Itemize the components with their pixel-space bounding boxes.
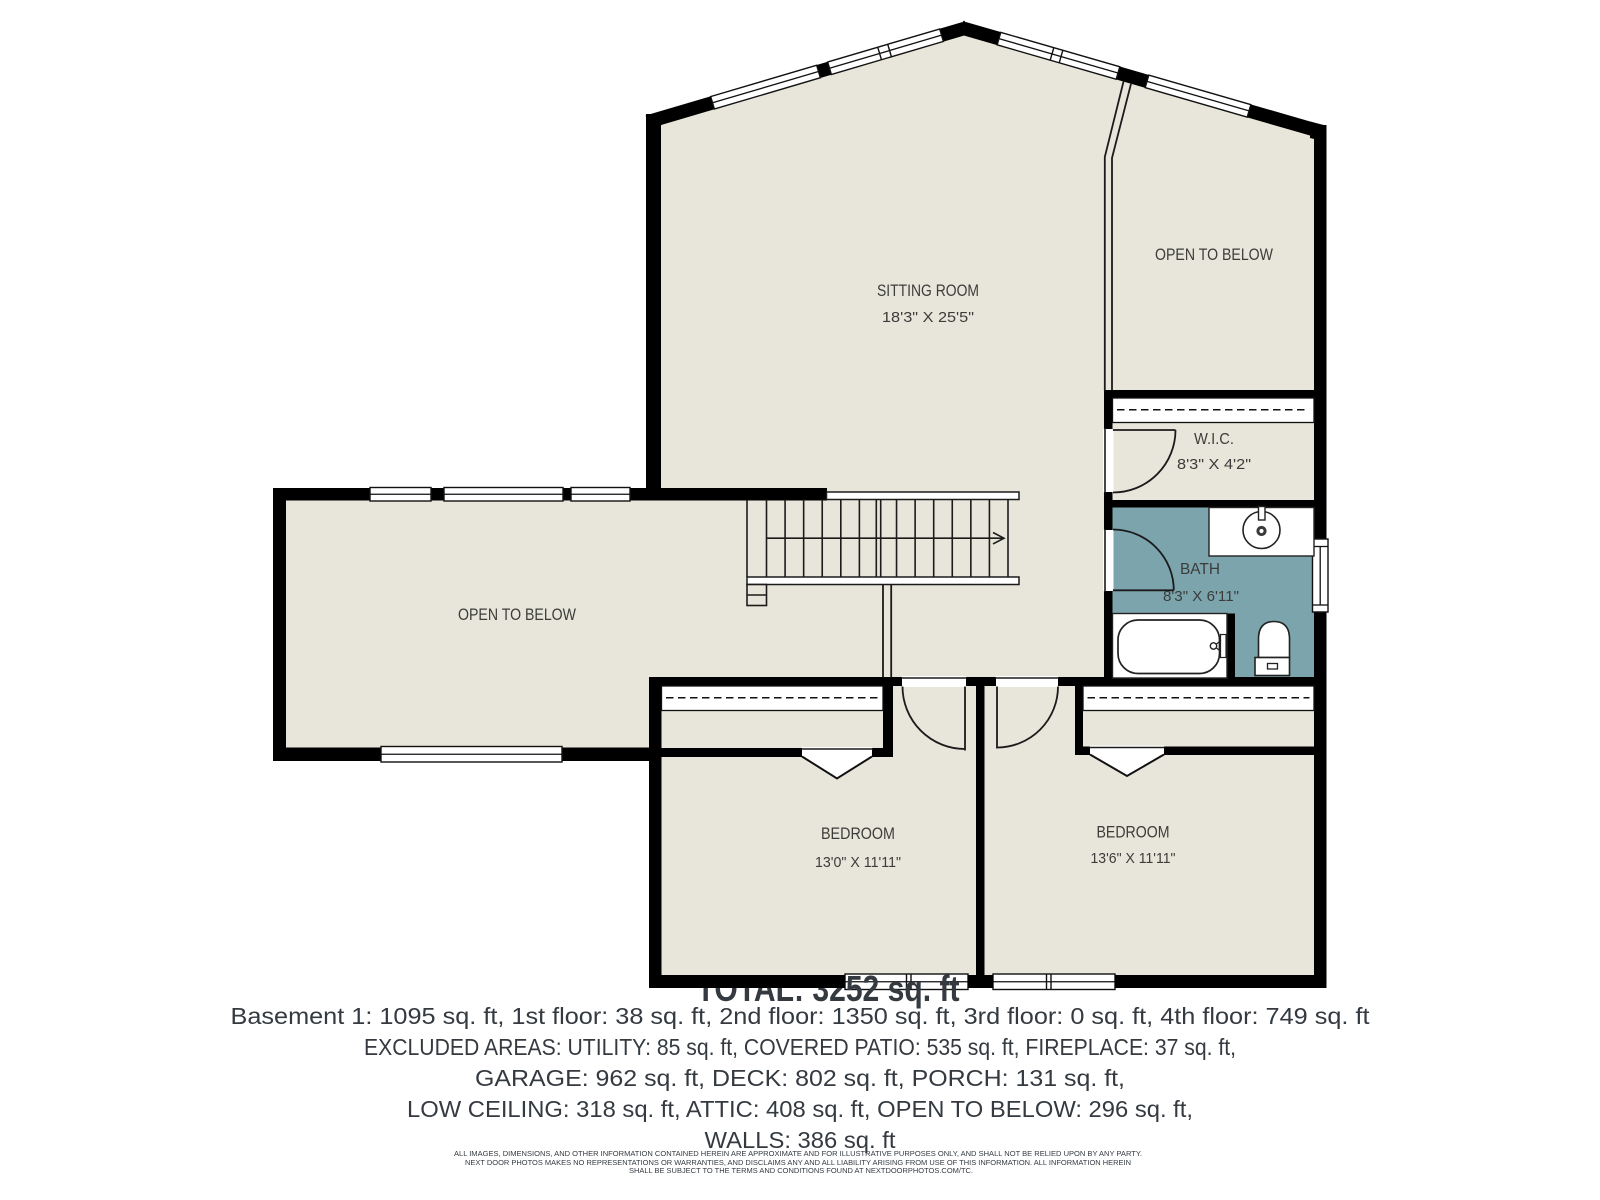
svg-text:EXCLUDED AREAS: UTILITY: 85 sq: EXCLUDED AREAS: UTILITY: 85 sq. ft, COVE… <box>364 1034 1236 1060</box>
svg-text:OPEN TO BELOW: OPEN TO BELOW <box>458 606 576 624</box>
svg-text:SHALL BE SUBJECT TO THE TERMS: SHALL BE SUBJECT TO THE TERMS AND CONDIT… <box>629 1168 973 1175</box>
svg-text:GARAGE: 962 sq. ft, DECK: 802: GARAGE: 962 sq. ft, DECK: 802 sq. ft, PO… <box>475 1065 1125 1091</box>
svg-text:18'3" X 25'5": 18'3" X 25'5" <box>882 309 974 326</box>
svg-text:LOW CEILING: 318 sq. ft, ATTIC: LOW CEILING: 318 sq. ft, ATTIC: 408 sq. … <box>407 1096 1193 1122</box>
svg-text:W.I.C.: W.I.C. <box>1194 431 1234 448</box>
svg-text:8'3" X 4'2": 8'3" X 4'2" <box>1177 456 1251 473</box>
svg-text:OPEN TO BELOW: OPEN TO BELOW <box>1155 246 1273 264</box>
svg-text:NEXT DOOR PHOTOS MAKES NO REPR: NEXT DOOR PHOTOS MAKES NO REPRESENTATION… <box>465 1160 1131 1167</box>
svg-text:13'6" X 11'11": 13'6" X 11'11" <box>1091 850 1176 867</box>
svg-text:SITTING ROOM: SITTING ROOM <box>877 282 979 300</box>
svg-text:BATH: BATH <box>1180 561 1220 578</box>
svg-text:BEDROOM: BEDROOM <box>821 825 895 843</box>
svg-text:8'3" X 6'11": 8'3" X 6'11" <box>1163 588 1239 605</box>
svg-text:ALL IMAGES, DIMENSIONS, AND OT: ALL IMAGES, DIMENSIONS, AND OTHER INFORM… <box>454 1151 1142 1158</box>
svg-text:WALLS: 386 sq. ft: WALLS: 386 sq. ft <box>705 1127 896 1153</box>
svg-text:13'0" X 11'11": 13'0" X 11'11" <box>815 854 901 871</box>
svg-text:Basement 1: 1095 sq. ft, 1st f: Basement 1: 1095 sq. ft, 1st floor: 38 s… <box>231 1003 1370 1029</box>
svg-text:BEDROOM: BEDROOM <box>1097 824 1170 842</box>
